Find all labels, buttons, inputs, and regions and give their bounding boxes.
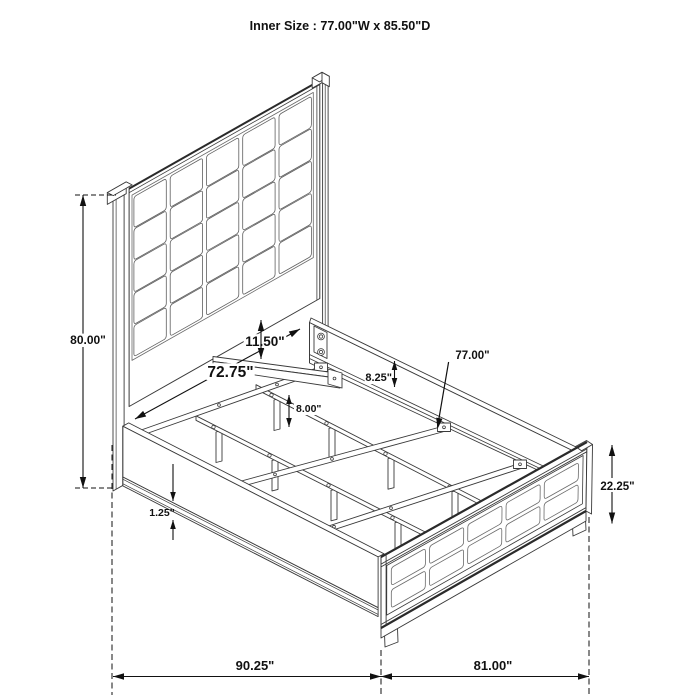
svg-text:77.00": 77.00" xyxy=(455,350,489,362)
svg-text:1.25": 1.25" xyxy=(149,507,174,519)
svg-text:22.25": 22.25" xyxy=(600,481,634,493)
svg-text:11.50": 11.50" xyxy=(245,334,284,349)
svg-text:8.00": 8.00" xyxy=(296,403,321,415)
svg-text:80.00": 80.00" xyxy=(70,333,106,347)
svg-text:72.75": 72.75" xyxy=(207,364,253,381)
svg-text:Inner Size : 77.00"W x 85.50"D: Inner Size : 77.00"W x 85.50"D xyxy=(250,19,431,33)
svg-text:81.00": 81.00" xyxy=(474,658,513,673)
svg-text:90.25": 90.25" xyxy=(236,658,275,673)
svg-text:8.25": 8.25" xyxy=(365,372,392,384)
